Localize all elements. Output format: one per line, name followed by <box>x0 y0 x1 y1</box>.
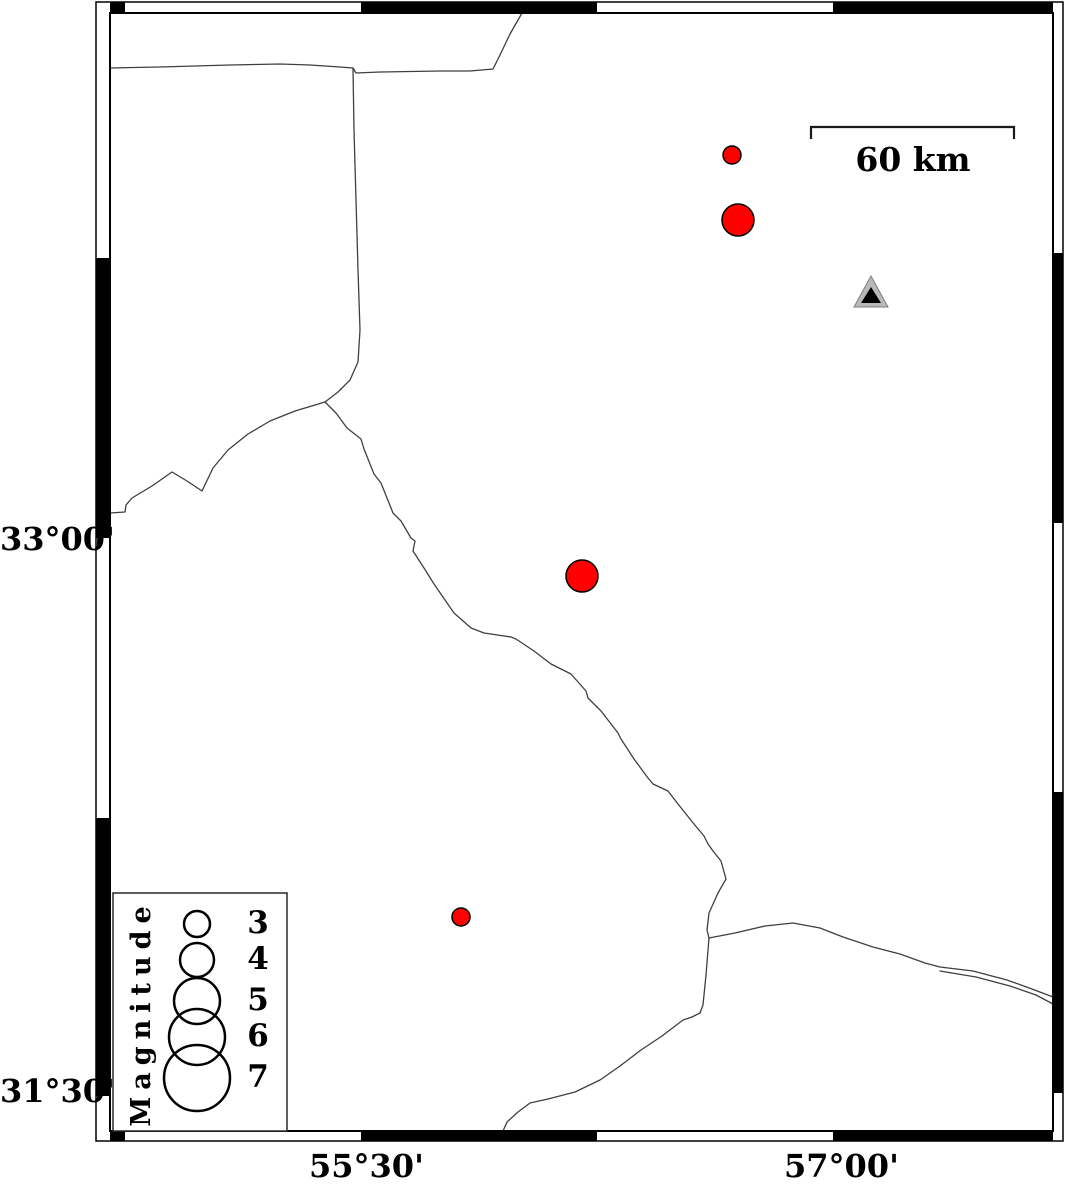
scalebar-bracket <box>811 127 1014 139</box>
legend-magnitude-4: 4 <box>236 941 280 977</box>
frame-tick-segment <box>96 818 110 1096</box>
boundary-line-central-diagonal <box>325 402 726 938</box>
frame-tick-segment <box>110 2 125 13</box>
earthquake-marker <box>566 560 598 592</box>
earthquake-marker <box>722 204 754 236</box>
latitude-label-31-30: 31°30' <box>0 1072 88 1110</box>
frame-tick-segment <box>833 2 1053 13</box>
boundary-line-north-east <box>353 13 522 73</box>
boundary-line-southwest-branch <box>110 402 325 513</box>
boundary-line-west-branch <box>325 68 360 402</box>
frame-tick-segment <box>361 1131 597 1141</box>
frame-tick-segment <box>361 2 597 13</box>
legend-magnitude-3: 3 <box>236 905 280 941</box>
longitude-label-55-30: 55°30' <box>309 1147 409 1185</box>
legend-magnitude-7: 7 <box>236 1059 280 1095</box>
latitude-label-33: 33°00' <box>0 520 88 558</box>
legend-magnitude-5: 5 <box>236 982 280 1018</box>
boundary-line-north-west <box>110 64 353 68</box>
boundary-line-south-to-bottom <box>503 938 709 1131</box>
legend-title: Magnitude <box>126 863 158 1163</box>
boundary-line-southeast-lower <box>940 971 1053 1004</box>
scalebar-label: 60 km <box>833 140 993 179</box>
legend-magnitude-6: 6 <box>236 1018 280 1054</box>
seismicity-map: 33°00' 31°30' 55°30' 57°00' 60 km Magnit… <box>0 0 1066 1180</box>
frame-tick-segment <box>1053 792 1063 1093</box>
earthquake-marker <box>723 146 741 164</box>
frame-tick-segment <box>110 1131 125 1141</box>
frame-tick-segment <box>833 1131 1053 1141</box>
longitude-label-57-00: 57°00' <box>784 1147 884 1185</box>
earthquake-marker <box>452 908 470 926</box>
frame-tick-segment <box>1053 253 1063 523</box>
frame-tick-segment <box>96 258 110 538</box>
boundary-line-southeast-upper <box>709 923 1053 997</box>
